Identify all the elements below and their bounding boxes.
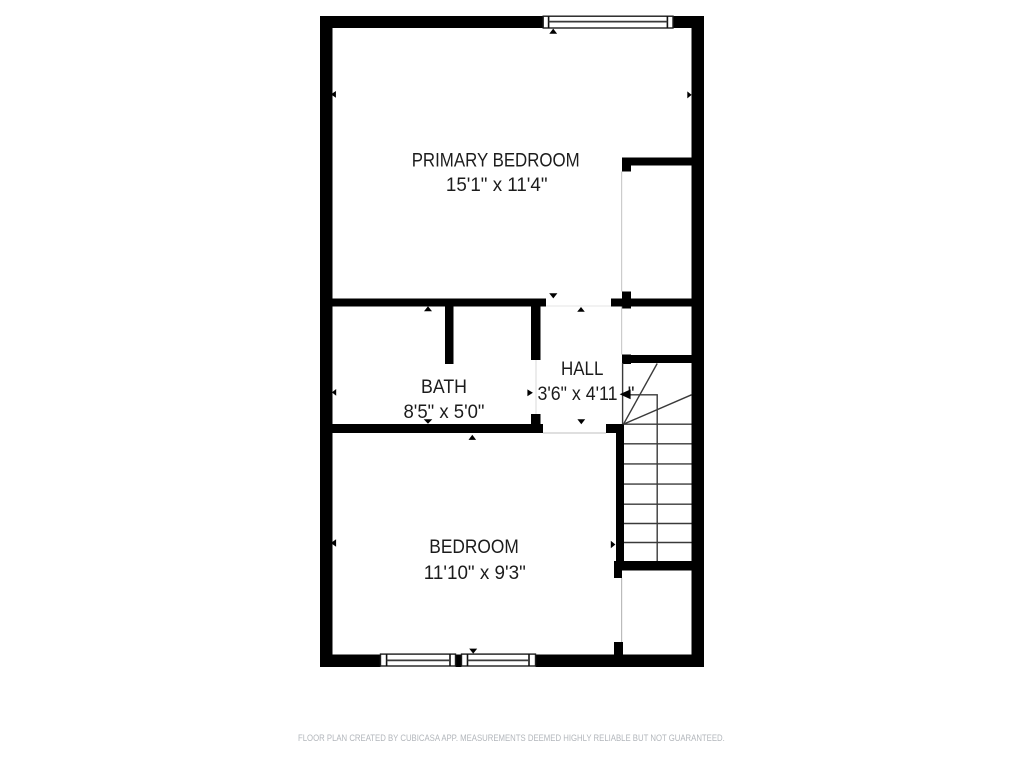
svg-text:15'1" x 11'4": 15'1" x 11'4" — [446, 175, 548, 196]
svg-text:PRIMARY BEDROOM: PRIMARY BEDROOM — [412, 150, 580, 171]
svg-text:3'6" x 4'11: 3'6" x 4'11 — [538, 384, 618, 405]
svg-text:8'5" x 5'0": 8'5" x 5'0" — [404, 402, 485, 423]
svg-text:BATH: BATH — [421, 377, 467, 398]
svg-text:HALL: HALL — [561, 359, 603, 380]
svg-text:11'10" x 9'3": 11'10" x 9'3" — [424, 563, 526, 584]
svg-text:FLOOR PLAN CREATED BY CUBICASA: FLOOR PLAN CREATED BY CUBICASA APP. MEAS… — [298, 733, 725, 743]
svg-text:BEDROOM: BEDROOM — [429, 537, 519, 558]
